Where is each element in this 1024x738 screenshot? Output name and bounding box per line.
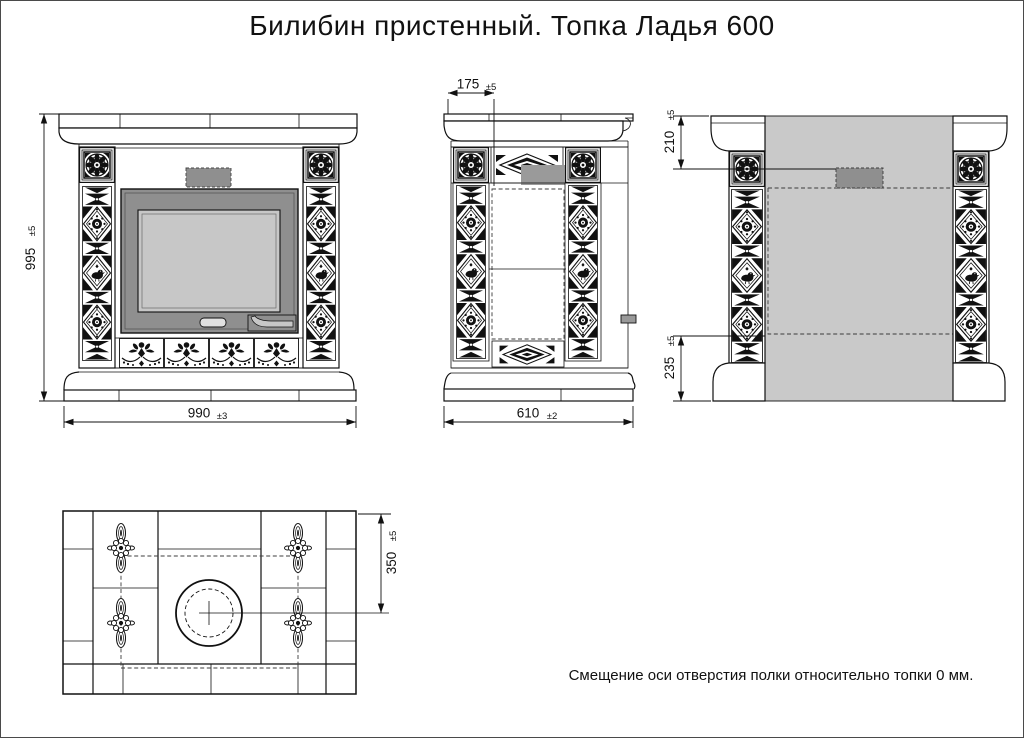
- top-view: 350 ±5: [63, 511, 399, 694]
- front-view: 995 ±5 990 ±3: [23, 114, 357, 428]
- column-ornament-strip: [83, 187, 112, 361]
- front-plinth: [64, 368, 356, 401]
- damper-lever: [621, 315, 636, 323]
- side-top-value: 175: [457, 77, 480, 92]
- side-cornice: [444, 114, 633, 147]
- front-frieze: [115, 338, 303, 368]
- back-left-corner: [711, 116, 765, 151]
- back-bottom-value: 235: [662, 357, 677, 380]
- rosette-tile: [954, 152, 989, 187]
- frieze-tile: [210, 339, 254, 368]
- side-depth-tolerance: ±2: [547, 411, 558, 422]
- dim-front-width: 990 ±3: [64, 406, 356, 429]
- front-height-value: 995: [23, 248, 38, 271]
- column-ornament-strip: [732, 190, 763, 363]
- diamond-ornament-tile: [500, 345, 555, 364]
- firebox-glass: [138, 210, 280, 312]
- flue-connector: [186, 168, 231, 187]
- rosette-tile: [80, 148, 115, 183]
- side-top-tolerance: ±5: [486, 82, 497, 93]
- air-lever: [248, 315, 296, 331]
- back-right-corner: [953, 116, 1007, 151]
- front-cornice: [59, 114, 357, 148]
- dim-shelf-hole: 350 ±5: [358, 514, 399, 613]
- back-bottom-tolerance: ±5: [666, 336, 677, 347]
- front-height-tolerance: ±5: [27, 226, 38, 237]
- back-top-value: 210: [662, 131, 677, 154]
- door-handle: [200, 318, 226, 327]
- rosette-tile: [304, 148, 339, 183]
- frieze-tile: [120, 339, 164, 368]
- column-ornament-strip: [569, 186, 598, 359]
- back-top-tolerance: ±5: [666, 110, 677, 121]
- offset-note: Смещение оси отверстия полки относительн…: [561, 667, 981, 684]
- side-depth-value: 610: [517, 406, 540, 421]
- frieze-tile: [255, 339, 299, 368]
- back-right-foot: [953, 363, 1005, 401]
- back-left-foot: [713, 363, 765, 401]
- dim-front-height: 995 ±5: [23, 114, 64, 401]
- back-view: 210 ±5 235 ±5: [662, 110, 1007, 401]
- wall-panel: [765, 116, 953, 401]
- rosette-tile: [566, 148, 601, 183]
- drawing-sheet: Билибин пристенный. Топка Ладья 600: [0, 0, 1024, 738]
- firebox-hidden-outline: [492, 189, 564, 339]
- column-ornament-strip: [457, 186, 486, 359]
- side-plinth: [444, 368, 635, 401]
- firebox: [121, 189, 298, 333]
- dim-side-depth: 610 ±2: [444, 406, 633, 429]
- column-ornament-strip: [307, 187, 336, 361]
- column-ornament-strip: [956, 190, 987, 363]
- shelf-hole-value: 350: [384, 552, 399, 575]
- front-width-tolerance: ±3: [217, 411, 228, 422]
- side-view: 175 ±5 610 ±2: [444, 77, 636, 429]
- shelf-hole-tolerance: ±5: [388, 531, 399, 542]
- frieze-tile: [165, 339, 209, 368]
- drawing-canvas: 995 ±5 990 ±3: [1, 1, 1024, 738]
- front-width-value: 990: [188, 406, 211, 421]
- rosette-tile: [454, 148, 489, 183]
- firebox-behind-peek: [521, 165, 565, 185]
- flue-connector-back: [836, 168, 883, 188]
